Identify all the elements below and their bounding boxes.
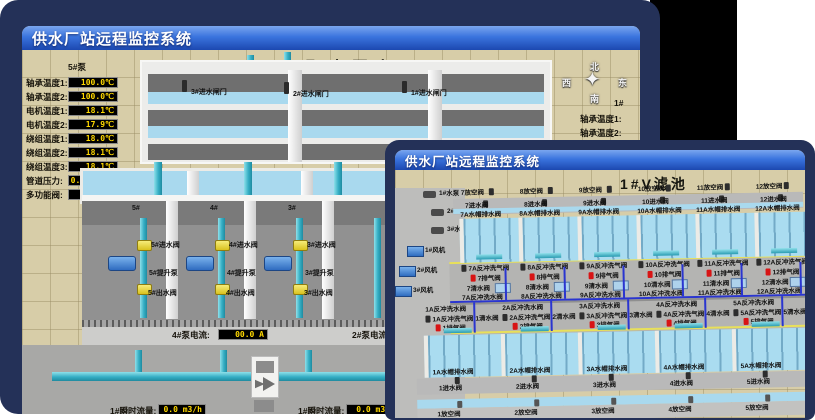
vent-valve-icon[interactable]	[607, 186, 612, 193]
desktop: 供水厂站远程监控系统 取水泵房 北 ✦ 西 东 南 5#泵 轴承温度1:100.…	[0, 0, 815, 420]
filter-grid: 7放空阀7进水阀7A水帽排水阀7A反冲洗气阀7排气阀7清水阀7A反冲洗水阀8放空…	[395, 170, 805, 418]
bw-air-valve-icon[interactable]	[461, 265, 466, 272]
pump-current-label: 4#泵电流:	[172, 330, 210, 340]
cell-air-stub-pipe	[476, 254, 502, 260]
inlet-valve-icon[interactable]	[686, 372, 691, 379]
cap-drain-valve-label: 7A水帽排水阀	[460, 211, 501, 219]
bw-air-valve-label: 3A反冲洗气阀	[586, 312, 627, 320]
panel-row-label: 轴承温度1:	[26, 78, 68, 88]
panel-row-value: 18.1℃	[68, 105, 118, 116]
panel-row-value: 17.9℃	[68, 119, 118, 130]
clean-water-box-icon[interactable]	[613, 280, 629, 290]
clean-valve-label: 2清水阀	[552, 314, 575, 321]
panel-row-label: 电机温度2:	[26, 120, 68, 130]
exhaust-valve-icon[interactable]	[530, 273, 535, 280]
flow-label: 1#瞬时流量:	[110, 406, 156, 414]
vent-valve-icon[interactable]	[548, 187, 553, 194]
inlet-valve-label: 10进水阀	[642, 199, 669, 207]
panel-row-label: 绕组温度3:	[26, 162, 68, 172]
inlet-valve-icon[interactable]	[763, 371, 768, 378]
exhaust-valve-label: 9排气阀	[596, 273, 619, 280]
vent-valve-icon[interactable]	[784, 182, 789, 189]
clean-water-box-icon[interactable]	[790, 277, 805, 287]
vent-valve-label: 11放空阀	[697, 184, 724, 192]
bay-riser-pipe	[140, 218, 147, 318]
cell-air-stub-pipe	[521, 326, 549, 332]
exhaust-valve-label: 12排气阀	[773, 269, 800, 277]
bw-air-valve-label: 4A反冲洗气阀	[663, 311, 704, 319]
bw-air-valve-icon[interactable]	[756, 259, 761, 266]
bay-outlet-label: 3#出水阀	[304, 290, 333, 298]
intake-gate-label: 1#进水闸门	[411, 90, 447, 98]
tank-water	[148, 126, 544, 138]
bw-air-valve-label: 8A反冲洗气阀	[527, 264, 568, 272]
inlet-valve-icon[interactable]	[609, 374, 614, 381]
bw-air-valve-label: 2A反冲洗气阀	[509, 314, 550, 322]
panel-row-label: 绕组温度2:	[26, 148, 68, 158]
panel-row-label: 管道压力:	[26, 176, 63, 186]
cell-air-stub-pipe	[598, 324, 626, 330]
right-panel-label: 轴承温度1:	[580, 114, 622, 124]
flow-value: 0.0 m3/h	[158, 404, 206, 414]
back-title: 供水厂站远程监控系统	[32, 28, 192, 49]
compass-star-icon: ✦	[584, 70, 601, 90]
cell-air-stub-pipe	[675, 323, 703, 329]
panel-row-value: 100.0℃	[68, 77, 118, 88]
main-valve-cabinet[interactable]	[251, 356, 279, 398]
inlet-valve-label: 5进水阀	[747, 378, 770, 385]
bay-header: 5#	[132, 205, 140, 213]
tank-channel	[148, 110, 544, 126]
bay-outlet-label: 5#出水阀	[148, 290, 177, 298]
bw-water-valve-label: 11A反冲洗水阀	[698, 289, 742, 297]
bay-riser-pipe	[374, 218, 381, 318]
clean-water-box-icon[interactable]	[495, 283, 511, 293]
clean-valve-label: 10清水阀	[644, 282, 671, 290]
inlet-valve-icon[interactable]	[455, 377, 460, 384]
exhaust-valve-icon[interactable]	[667, 320, 672, 327]
exhaust-valve-label: 11排气阀	[714, 270, 741, 278]
inlet-valve-label: 2进水阀	[516, 383, 539, 390]
cell-air-stub-pipe	[444, 328, 472, 334]
intake-gate-icon[interactable]	[284, 82, 289, 94]
bay-inlet-label: 4#进水阀	[229, 242, 258, 250]
cap-drain-valve-label: 9A水帽排水阀	[578, 209, 619, 217]
bw-air-valve-icon[interactable]	[579, 312, 584, 319]
panel-row-value: 100.0℃	[68, 91, 118, 102]
inlet-valve-label: 11进水阀	[701, 197, 728, 205]
bw-air-valve-icon[interactable]	[638, 261, 643, 268]
bw-air-valve-label: 5A反冲洗气阀	[740, 309, 781, 317]
lift-pump-icon[interactable]	[264, 256, 292, 271]
cabinet-base	[254, 400, 274, 412]
cap-drain-valve-label: 1A水帽排水阀	[433, 369, 474, 377]
intake-gate-label: 3#进水闸门	[191, 89, 227, 97]
cell-air-stub-pipe	[752, 321, 780, 327]
bw-air-valve-icon[interactable]	[697, 260, 702, 267]
bw-air-valve-icon[interactable]	[425, 316, 430, 323]
bay-header: 4#	[210, 205, 218, 213]
vent-valve-label: 4放空阀	[668, 406, 691, 413]
cap-drain-valve-label: 10A水帽排水阀	[637, 207, 682, 215]
bw-air-valve-icon[interactable]	[502, 314, 507, 321]
bay-pump-label: 4#提升泵	[227, 270, 256, 278]
exhaust-valve-icon[interactable]	[766, 268, 771, 275]
inlet-valve-label: 3进水阀	[593, 382, 616, 389]
front-titlebar[interactable]: 供水厂站远程监控系统	[395, 150, 805, 170]
vent-valve-icon[interactable]	[765, 394, 770, 401]
tank-pillar	[288, 70, 302, 162]
bw-air-valve-label: 1A反冲洗气阀	[432, 316, 473, 324]
bw-water-valve-label: 2A反冲洗水阀	[502, 304, 543, 312]
right-panel-label: 轴承温度2:	[580, 128, 622, 138]
clean-valve-label: 9清水阀	[585, 283, 608, 290]
compass-east: 东	[618, 76, 627, 89]
exhaust-valve-icon[interactable]	[513, 323, 518, 330]
bw-water-valve-label: 8A反冲洗水阀	[521, 293, 562, 301]
bay-header: 3#	[288, 205, 296, 213]
front-screen: 供水厂站远程监控系统 1#V滤池 1#水泵2#水泵3#水泵1#风机2#风机3#风…	[395, 150, 805, 418]
bay-outlet-label: 4#出水阀	[226, 290, 255, 298]
clean-water-box-icon[interactable]	[672, 279, 688, 289]
cell-air-stub-pipe	[594, 252, 620, 258]
bay-pump-label: 5#提升泵	[149, 270, 178, 278]
pumproom-pillar	[166, 201, 178, 319]
vent-valve-label: 2放空阀	[514, 409, 537, 416]
cell-air-stub-pipe	[712, 249, 738, 255]
inlet-valve-label: 7进水阀	[465, 202, 488, 209]
panel-row-label: 多功能阀:	[26, 190, 63, 200]
vent-valve-icon[interactable]	[457, 401, 462, 408]
cap-drain-valve-label: 11A水帽排水阀	[696, 206, 740, 214]
pump-panel-header: 5#泵	[68, 62, 86, 72]
bay-pump-label: 3#提升泵	[305, 270, 334, 278]
background-patch	[650, 0, 737, 142]
bw-air-valve-label: 9A反冲洗气阀	[586, 262, 627, 270]
vent-valve-icon[interactable]	[534, 399, 539, 406]
exhaust-valve-icon[interactable]	[707, 270, 712, 277]
clean-valve-label: 11清水阀	[703, 280, 730, 288]
cap-drain-valve-label: 4A水帽排水阀	[663, 364, 704, 372]
panel-row-value: 18.1℃	[68, 147, 118, 158]
vent-valve-label: 8放空阀	[520, 188, 543, 195]
bw-water-valve-label: 10A反冲洗水阀	[639, 290, 684, 298]
pump-current-value: 00.0 A	[218, 329, 268, 340]
lift-pump-icon[interactable]	[186, 256, 214, 271]
compass: 北 ✦ 西 东 南	[562, 60, 632, 120]
inlet-valve-label: 9进水阀	[583, 200, 606, 207]
cabinet-panel	[256, 361, 274, 373]
bw-air-valve-label: 7A反冲洗气阀	[468, 265, 509, 273]
bw-water-valve-label: 3A反冲洗水阀	[579, 303, 620, 311]
vent-valve-icon[interactable]	[725, 183, 730, 190]
right-panel-header: 1#	[614, 98, 623, 108]
filter-scene: 1#V滤池 1#水泵2#水泵3#水泵1#风机2#风机3#风机 7放空阀7进水阀7…	[395, 170, 805, 418]
panel-row-label: 轴承温度2:	[26, 92, 68, 102]
vent-valve-icon[interactable]	[688, 396, 693, 403]
exhaust-valve-icon[interactable]	[471, 275, 476, 282]
front-title: 供水厂站远程监控系统	[405, 151, 540, 170]
inlet-valve-label: 1进水阀	[439, 385, 462, 392]
inlet-valve-icon[interactable]	[293, 240, 308, 251]
vent-valve-label: 9放空阀	[579, 187, 602, 194]
exhaust-valve-label: 8排气阀	[537, 274, 560, 281]
pumproom-pillar	[322, 201, 334, 319]
bw-water-valve-label: 1A反冲洗水阀	[425, 306, 466, 314]
bw-water-valve-label: 12A反冲洗水阀	[757, 288, 802, 296]
exhaust-valve-label: 10排气阀	[655, 271, 682, 279]
vent-valve-label: 7放空阀	[461, 189, 484, 196]
clean-valve-label: 7清水阀	[467, 285, 490, 292]
bw-air-valve-icon[interactable]	[520, 264, 525, 271]
exhaust-valve-icon[interactable]	[436, 324, 441, 331]
cell-air-stub-pipe	[653, 250, 679, 256]
vent-valve-label: 10放空阀	[638, 186, 665, 194]
compass-west: 西	[562, 76, 571, 89]
exhaust-valve-icon[interactable]	[744, 318, 749, 325]
vent-valve-label: 5放空阀	[745, 404, 768, 411]
bw-air-valve-icon[interactable]	[733, 309, 738, 316]
inlet-valve-icon[interactable]	[215, 240, 230, 251]
clean-water-box-icon[interactable]	[554, 282, 570, 292]
bw-air-valve-icon[interactable]	[579, 262, 584, 269]
inlet-valve-label: 4进水阀	[670, 380, 693, 387]
clean-valve-label: 3清水阀	[629, 312, 652, 319]
cap-drain-valve-label: 12A水帽排水阀	[755, 205, 800, 213]
panel-row-label: 电机温度1:	[26, 106, 68, 116]
clean-valve-label: 12清水阀	[762, 279, 789, 287]
inlet-valve-label: 12进水阀	[760, 196, 787, 204]
cell-air-stub-pipe	[535, 253, 561, 259]
cap-drain-valve-label: 5A水帽排水阀	[740, 362, 781, 370]
front-window: 供水厂站远程监控系统 1#V滤池 1#水泵2#水泵3#水泵1#风机2#风机3#风…	[385, 140, 815, 420]
bw-water-valve-label: 4A反冲洗水阀	[656, 301, 697, 309]
bay-inlet-label: 3#进水阀	[307, 242, 336, 250]
bw-water-valve-label: 5A反冲洗水阀	[733, 299, 774, 307]
vent-valve-icon[interactable]	[489, 188, 494, 195]
clean-valve-label: 5清水阀	[783, 309, 805, 316]
cap-drain-valve-label: 3A水帽排水阀	[587, 365, 628, 373]
bay-riser-pipe	[218, 218, 225, 318]
compass-south: 南	[590, 92, 599, 105]
intake-gate-icon[interactable]	[182, 80, 187, 92]
cap-drain-valve-label: 8A水帽排水阀	[519, 210, 560, 218]
clean-valve-label: 4清水阀	[706, 310, 729, 317]
intake-gate-icon[interactable]	[402, 81, 407, 93]
lift-pump-icon[interactable]	[108, 256, 136, 271]
exhaust-valve-label: 7排气阀	[478, 275, 501, 282]
vent-valve-icon[interactable]	[611, 398, 616, 405]
cell-air-stub-pipe	[771, 248, 797, 254]
flow-label: 1#瞬时流量:	[298, 406, 344, 414]
clean-water-box-icon[interactable]	[731, 278, 747, 288]
inlet-valve-label: 8进水阀	[524, 201, 547, 208]
clean-valve-label: 8清水阀	[526, 284, 549, 291]
cap-drain-valve-label: 2A水帽排水阀	[510, 367, 551, 375]
back-titlebar[interactable]: 供水厂站远程监控系统	[22, 26, 640, 50]
vent-valve-label: 1放空阀	[437, 411, 460, 418]
pumproom-pillar	[244, 201, 256, 319]
panel-row-label: 绕组温度1:	[26, 134, 68, 144]
vent-valve-icon[interactable]	[666, 184, 671, 191]
panel-row-value: 18.0℃	[68, 133, 118, 144]
butterfly-valve-icon	[255, 377, 275, 391]
exhaust-valve-icon[interactable]	[590, 321, 595, 328]
exhaust-valve-icon[interactable]	[589, 272, 594, 279]
inlet-valve-icon[interactable]	[532, 375, 537, 382]
bw-water-valve-label: 7A反冲洗水阀	[462, 294, 503, 302]
exhaust-valve-icon[interactable]	[648, 271, 653, 278]
bw-air-valve-icon[interactable]	[656, 311, 661, 318]
vent-valve-label: 12放空阀	[756, 183, 783, 191]
bay-inlet-label: 5#进水阀	[151, 242, 180, 250]
intake-gate-label: 2#进水闸门	[293, 91, 329, 99]
bay-riser-pipe	[296, 218, 303, 318]
clean-valve-label: 1清水阀	[475, 315, 498, 322]
inlet-valve-icon[interactable]	[137, 240, 152, 251]
vent-valve-label: 3放空阀	[591, 408, 614, 415]
bw-water-valve-label: 9A反冲洗水阀	[580, 292, 621, 300]
